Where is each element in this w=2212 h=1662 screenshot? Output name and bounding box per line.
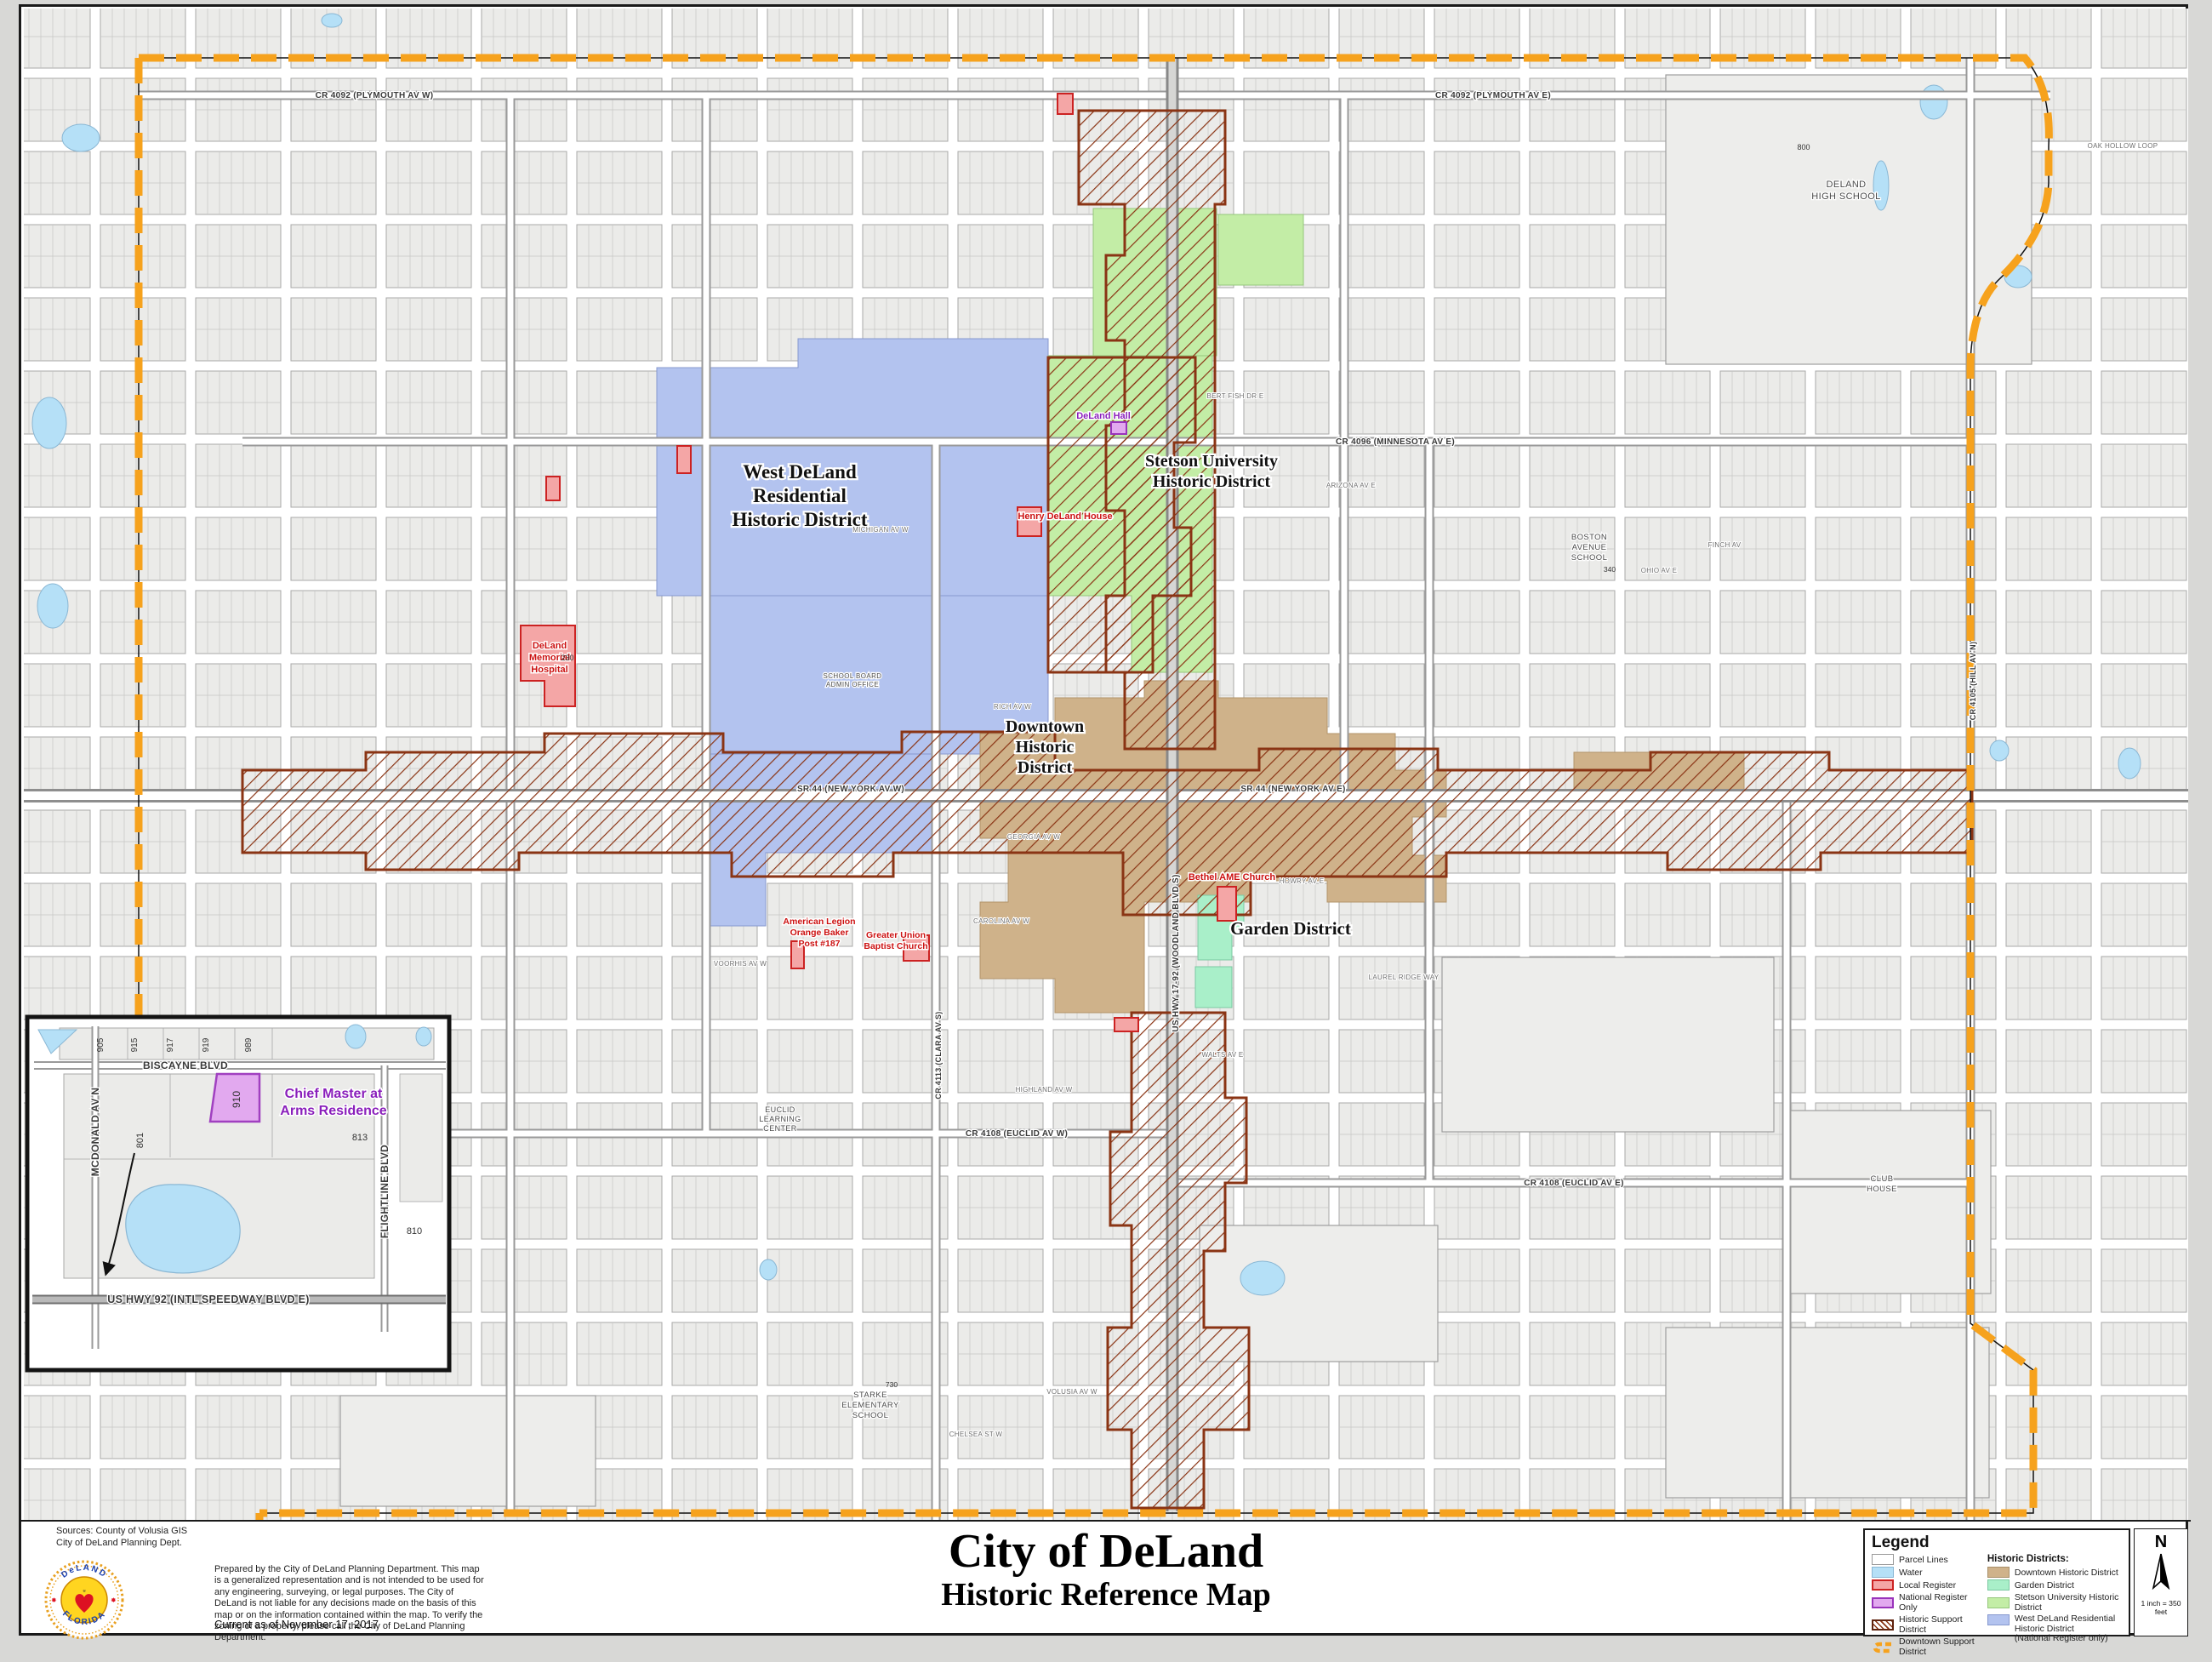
svg-text:✸: ✸ <box>51 1596 57 1604</box>
rich-label: RICH AV W <box>994 703 1031 711</box>
bethel-ame-label: Bethel AME Church <box>1189 872 1276 882</box>
downtown-hd-swatch <box>1987 1567 2010 1578</box>
downtown-support-swatch <box>1872 1642 1894 1653</box>
downtown-label: Downtown <box>1006 717 1084 736</box>
chelsea-label: CHELSEA ST W <box>949 1431 1003 1438</box>
newyork-w-label: SR 44 (NEW YORK AV W) <box>797 785 904 794</box>
hospital-label: DeLand <box>533 641 567 651</box>
legend-item-garden: Garden District <box>1987 1579 2122 1591</box>
svg-text:ELEMENTARY: ELEMENTARY <box>841 1401 899 1410</box>
svg-text:Hospital: Hospital <box>531 665 567 675</box>
flightline-label: FLIGHTLINE BLVD <box>379 1145 391 1238</box>
svg-text:730: 730 <box>886 1380 898 1389</box>
bertfish-label: BERT FISH DR E <box>1206 392 1263 400</box>
historic-support-swatch <box>1872 1619 1894 1631</box>
garden-swatch <box>1987 1579 2010 1591</box>
svg-text:AVENUE: AVENUE <box>1572 543 1607 552</box>
west-deland-swatch <box>1987 1614 2010 1625</box>
ohio-label: OHIO AV E <box>1641 567 1678 574</box>
svg-text:Baptist Church: Baptist Church <box>864 941 927 951</box>
inset-lake <box>126 1185 240 1273</box>
svg-text:HOUSE: HOUSE <box>1867 1185 1897 1194</box>
laurel-label: LAUREL RIDGE WAY <box>1369 974 1440 981</box>
svg-text:District: District <box>1018 758 1073 777</box>
sources-line1: Sources: County of Volusia GIS <box>56 1525 187 1537</box>
hill-label: CR 4105 (HILL AV N) <box>1969 642 1977 721</box>
greater-union-label: Greater Union <box>866 930 926 940</box>
svg-text:Arms Residence: Arms Residence <box>280 1104 386 1118</box>
speedway-label: US HWY 92 (INTL SPEEDWAY BLVD E) <box>107 1294 309 1305</box>
city-seal-logo: ⚒ DeLAND FLORIDA ✸ ✸ <box>44 1560 124 1640</box>
legend-title: Legend <box>1872 1533 2122 1552</box>
svg-text:CENTER: CENTER <box>763 1124 797 1133</box>
svg-text:LEARNING: LEARNING <box>759 1115 801 1123</box>
scale-text: 1 inch = 350 feet <box>2135 1599 2187 1616</box>
mcdonald-label: MCDONALD AV N <box>89 1088 101 1177</box>
arizona-label: ARIZONA AV E <box>1326 482 1376 489</box>
carolina-label: CAROLINA AV W <box>973 917 1029 925</box>
north-arrow-icon <box>2150 1552 2172 1590</box>
finch-label: FINCH AV <box>1708 541 1742 549</box>
club-house-parcel <box>1790 1111 1991 1294</box>
west-deland-label: West DeLand <box>743 461 857 483</box>
club-house-label: CLUB <box>1871 1174 1894 1184</box>
footer-divider <box>21 1520 2191 1522</box>
water-swatch <box>1872 1567 1894 1578</box>
svg-text:919: 919 <box>202 1037 211 1052</box>
sources-note: Sources: County of Volusia GIS City of D… <box>56 1525 187 1550</box>
euclid-learning-center-label: EUCLID <box>765 1105 795 1114</box>
georgia-label: GEORGIA AV W <box>1007 833 1060 841</box>
legend-item-historic-support: Historic Support District <box>1872 1614 1982 1635</box>
woodland-label: US HWY 17-92 (WOODLAND BLVD S) <box>1172 874 1181 1031</box>
volusia-label: VOLUSIA AV W <box>1046 1388 1097 1396</box>
current-as-of: Current as of November 17, 2017 <box>214 1618 379 1631</box>
svg-text:910: 910 <box>231 1091 242 1108</box>
national-register-parcels <box>1111 422 1126 434</box>
svg-text:SCHOOL: SCHOOL <box>1571 553 1608 563</box>
parcel-lines-swatch <box>1872 1554 1894 1565</box>
legend-item-water: Water <box>1872 1567 1982 1578</box>
svg-text:340: 340 <box>1604 565 1616 574</box>
north-letter: N <box>2135 1533 2187 1552</box>
euclid-w-label: CR 4108 (EUCLID AV W) <box>966 1129 1068 1139</box>
local-register-swatch <box>1872 1579 1894 1591</box>
national-register-swatch <box>1872 1597 1894 1608</box>
plymouth-w-label: CR 4092 (PLYMOUTH AV W) <box>316 91 434 100</box>
henry-deland-house-label: Henry DeLand House <box>1018 511 1112 522</box>
svg-text:801: 801 <box>135 1133 145 1148</box>
legend: Legend Parcel Lines Water Local Register… <box>1863 1528 2130 1636</box>
stetson-label: Stetson University <box>1145 452 1278 471</box>
clara-label: CR 4113 (CLARA AV S) <box>934 1011 943 1099</box>
starke-elementary-label: STARKE <box>853 1391 887 1400</box>
legend-item-west-deland: West DeLand Residential Historic Distric… <box>1987 1614 2122 1644</box>
chief-master-label: Chief Master at <box>285 1087 383 1101</box>
svg-text:Historic: Historic <box>1016 738 1075 757</box>
high-school-label: DELAND <box>1826 180 1866 190</box>
svg-text:810: 810 <box>407 1226 422 1237</box>
map-canvas: West DeLand Residential Historic Distric… <box>24 9 2188 1520</box>
inset-map: BISCAYNE BLVD MCDONALD AV N FLIGHTLINE B… <box>27 1017 449 1370</box>
svg-text:230: 230 <box>561 654 573 662</box>
map-title: City of DeLand <box>723 1528 1489 1576</box>
legend-item-local-register: Local Register <box>1872 1579 1982 1591</box>
legend-item-parcel-lines: Parcel Lines <box>1872 1554 1982 1565</box>
svg-text:813: 813 <box>352 1133 368 1143</box>
svg-text:Historic District: Historic District <box>1153 472 1271 491</box>
highland-label: HIGHLAND AV W <box>1016 1086 1073 1094</box>
svg-text:SCHOOL: SCHOOL <box>852 1411 889 1420</box>
svg-text:989: 989 <box>244 1037 254 1052</box>
title-block: City of DeLand Historic Reference Map <box>723 1528 1489 1613</box>
plymouth-e-label: CR 4092 (PLYMOUTH AV E) <box>1435 91 1551 100</box>
stetson-swatch <box>1987 1597 2010 1608</box>
compass-box: N 1 inch = 350 feet <box>2134 1528 2188 1636</box>
svg-text:ADMIN OFFICE: ADMIN OFFICE <box>826 681 879 688</box>
legion-label: American Legion <box>783 917 855 927</box>
euclid-e-label: CR 4108 (EUCLID AV E) <box>1524 1179 1623 1188</box>
garden-label: Garden District <box>1230 918 1351 939</box>
map-subtitle: Historic Reference Map <box>723 1576 1489 1613</box>
svg-text:✸: ✸ <box>111 1596 117 1604</box>
disclaimer-text: Prepared by the City of DeLand Planning … <box>214 1564 485 1644</box>
michigan-label: MICHIGAN AV W <box>852 526 909 534</box>
svg-text:905: 905 <box>96 1037 105 1052</box>
page: { "colors": { "water": "#b5e0f7", "bound… <box>0 0 2212 1662</box>
deland-hall-parcel <box>1111 422 1126 434</box>
svg-text:800: 800 <box>1797 143 1810 151</box>
deland-hall-label: DeLand Hall <box>1076 411 1131 421</box>
legend-item-stetson: Stetson University Historic District <box>1987 1592 2122 1613</box>
svg-text:Historic District: Historic District <box>732 509 867 530</box>
biscayne-label: BISCAYNE BLVD <box>143 1059 228 1071</box>
school-board-label: SCHOOL BOARD <box>824 672 882 680</box>
bethel-ame-parcel <box>1217 887 1236 921</box>
svg-text:Residential: Residential <box>753 485 847 506</box>
newyork-e-label: SR 44 (NEW YORK AV E) <box>1240 785 1345 794</box>
boston-avenue-school-label: BOSTON <box>1571 533 1607 542</box>
svg-text:Post #187: Post #187 <box>798 939 840 949</box>
svg-text:917: 917 <box>166 1037 175 1052</box>
oakhollow-label: OAK HOLLOW LOOP <box>2088 142 2158 150</box>
walts-label: WALTS AV E <box>1201 1051 1243 1059</box>
legend-item-national-register: National Register Only <box>1872 1592 1982 1613</box>
legend-item-downtown-support: Downtown Support District <box>1872 1636 1982 1657</box>
svg-text:Orange Baker: Orange Baker <box>790 928 849 938</box>
legend-item-downtown-hd: Downtown Historic District <box>1987 1567 2122 1578</box>
voorhis-label: VOORHIS AV W <box>714 960 767 968</box>
minnesota-label: CR 4096 (MINNESOTA AV E) <box>1336 437 1455 447</box>
svg-text:HIGH SCHOOL: HIGH SCHOOL <box>1811 191 1880 202</box>
howry-label: HOWRY AV E <box>1280 877 1325 885</box>
historic-districts-header: Historic Districts: <box>1987 1554 2122 1564</box>
svg-text:⚒: ⚒ <box>83 1589 86 1593</box>
sources-line2: City of DeLand Planning Dept. <box>56 1537 187 1549</box>
svg-text:915: 915 <box>130 1037 140 1052</box>
